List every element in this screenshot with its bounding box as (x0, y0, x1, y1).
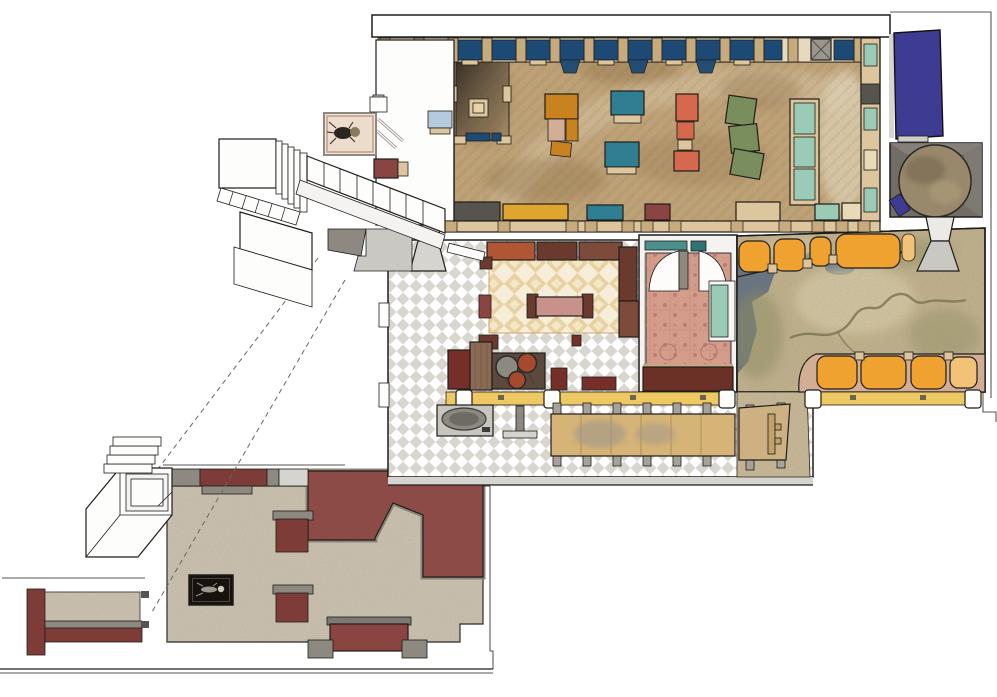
table (545, 94, 578, 119)
tan-rug (489, 257, 619, 333)
floor-display-case (189, 575, 233, 605)
outer-wall-band (372, 15, 890, 37)
sofa (537, 242, 577, 260)
table-plank (768, 414, 775, 454)
bar-rail (446, 390, 981, 408)
teal-bench (711, 285, 728, 337)
table (725, 95, 757, 127)
table (730, 149, 764, 180)
counter-end (551, 368, 567, 390)
table (674, 151, 699, 171)
outline-step (983, 392, 996, 422)
hall-bottom-wall (445, 221, 880, 232)
bench (447, 202, 500, 221)
niche-seat (864, 150, 877, 170)
hot-plate (518, 354, 537, 373)
mid-level (328, 210, 996, 485)
table-base (678, 140, 692, 150)
tower-notch (898, 136, 928, 142)
bench (842, 203, 862, 220)
round-platform-texture (899, 145, 971, 217)
floor-plan-drawing (0, 0, 997, 697)
long-table-2 (739, 404, 790, 460)
table (611, 91, 644, 115)
sofa (579, 242, 622, 260)
wall-stub (679, 251, 688, 289)
bench (645, 204, 670, 220)
hot-plate (509, 372, 526, 389)
wall-stub-box (370, 97, 387, 112)
framed-picture (324, 113, 376, 155)
table (566, 119, 578, 141)
bench (815, 204, 839, 220)
table (794, 137, 815, 167)
table (548, 119, 565, 141)
mezzanine-shadow (449, 49, 511, 144)
right-niche-wall (861, 38, 880, 222)
upper-landing (219, 139, 276, 188)
table (794, 169, 815, 200)
wash-basin (437, 405, 493, 436)
stair-tower (889, 30, 943, 142)
table (676, 94, 698, 121)
pink-bench (536, 297, 583, 316)
small-block (572, 335, 581, 346)
rug-room (639, 235, 737, 392)
stair-funnel-top (926, 217, 954, 241)
table (794, 103, 815, 134)
sofa (619, 301, 639, 337)
bottom-booths (817, 352, 977, 389)
table-base (614, 115, 641, 123)
wall-shelf (202, 486, 252, 494)
table (550, 141, 571, 157)
landing-bench (374, 159, 398, 178)
tower-ledge (889, 34, 894, 138)
table (605, 142, 639, 167)
niche-seat (864, 108, 877, 130)
teal-table (691, 241, 706, 251)
wall-niche (379, 303, 389, 327)
teal-door (645, 241, 687, 250)
cabinet (448, 350, 470, 389)
table-base (607, 167, 636, 174)
corridor (2, 578, 149, 655)
niche-block (861, 84, 880, 104)
table (677, 122, 694, 139)
landing-bench-end (398, 162, 408, 176)
dumbwaiter-box (811, 39, 831, 60)
brown-bench (643, 367, 733, 391)
bench-end (582, 294, 593, 318)
service-bench (582, 377, 616, 390)
table (729, 124, 760, 154)
niche-seat (864, 188, 877, 212)
niche-seat (864, 44, 877, 66)
stair-tower-shaft (894, 30, 943, 139)
bench-base (430, 128, 450, 134)
bench (503, 204, 568, 220)
bench-seat (428, 111, 452, 128)
lounge-cafe (479, 242, 639, 349)
turn-steps (276, 141, 307, 212)
side-seat (479, 295, 491, 318)
lower-top-wall (163, 469, 308, 486)
sofa (619, 247, 637, 301)
wall-niche (379, 383, 389, 407)
entrance-steps (328, 229, 412, 271)
sofa (487, 242, 535, 260)
bench (587, 205, 623, 220)
light-well-box (86, 468, 172, 557)
floor-plan-canvas (0, 0, 997, 697)
bench (736, 202, 780, 221)
floor-edge-band (388, 477, 813, 485)
